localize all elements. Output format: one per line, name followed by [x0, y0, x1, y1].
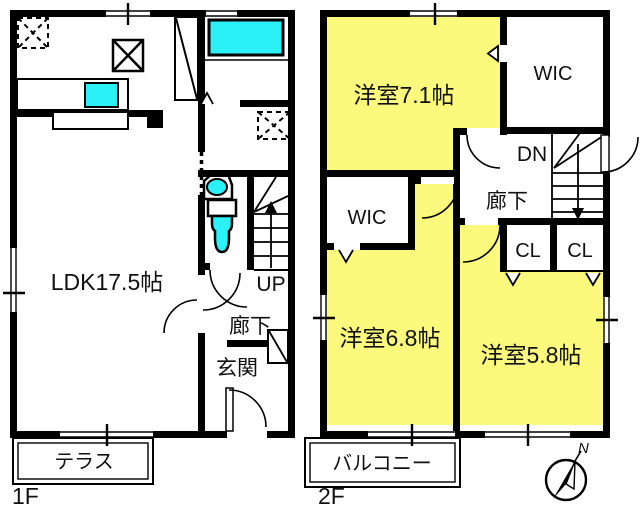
entrance-door-leaf: [226, 388, 233, 431]
kitchen-sink: [85, 83, 118, 107]
label-entrance: 玄関: [216, 357, 258, 380]
ldk-door-opening: [198, 275, 205, 333]
room71-door-opening: [467, 128, 500, 135]
floorplan-svg: LDK17.5帖 廊下 UP 玄関 テラス 1F: [0, 0, 640, 509]
wall-hall-west: [453, 128, 460, 225]
bathtub: [209, 20, 283, 55]
wall-closet-mid: [550, 225, 557, 271]
wall-wic-top-bottom: [507, 127, 610, 134]
wall-toilet-stairs: [247, 170, 254, 270]
label-cl-left: CL: [515, 240, 541, 262]
kitchen-counter-lower: [53, 112, 128, 129]
washbasin-bowl: [207, 179, 227, 195]
wall-washroom-bottom: [198, 170, 295, 177]
label-ldk: LDK17.5帖: [51, 269, 164, 295]
label-balcony: バルコニー: [332, 453, 432, 475]
stair-door-leaf: [601, 135, 609, 172]
wall-2f-top: [320, 10, 610, 17]
label-wic-left: WIC: [348, 207, 387, 229]
wall-wic-top: [500, 10, 507, 133]
wic-top-opening: [500, 45, 507, 62]
wall-ldk-east-c: [198, 333, 205, 438]
toilet-tank: [208, 200, 236, 216]
wall-1f-top: [10, 10, 295, 17]
label-hallway-2f: 廊下: [486, 190, 528, 213]
label-up: UP: [256, 273, 285, 296]
wall-wic-left-east: [408, 177, 415, 250]
toilet-door-opening: [210, 263, 247, 270]
toilet-bowl: [212, 216, 232, 252]
range-hood-box: [113, 40, 143, 71]
label-dn: DN: [517, 143, 547, 166]
wall-2f-left: [320, 10, 327, 438]
floorplan-image: LDK17.5帖 廊下 UP 玄関 テラス 1F: [0, 0, 640, 509]
wall-closet-left: [500, 225, 507, 271]
label-room-5-8: 洋室5.8帖: [481, 342, 582, 368]
label-floor-2f: 2F: [318, 483, 345, 509]
kitchen-wall-step: [147, 110, 163, 128]
compass-north-label: N: [578, 440, 589, 457]
label-terrace: テラス: [54, 451, 114, 473]
wall-1f-right: [288, 10, 295, 438]
label-floor-1f: 1F: [12, 483, 39, 509]
room58-door-opening: [465, 218, 498, 225]
entrance-door-opening: [227, 431, 267, 438]
label-hallway-1f: 廊下: [229, 315, 271, 338]
label-room-7-1: 洋室7.1帖: [354, 82, 455, 108]
wall-ldk-bath: [198, 17, 205, 107]
label-cl-right: CL: [567, 240, 593, 262]
wall-1f-left: [10, 10, 17, 438]
wall-room68-room58: [453, 225, 460, 431]
room68-door-opening: [421, 177, 454, 184]
wall-room71-bottom: [320, 170, 453, 177]
label-room-6-8: 洋室6.8帖: [340, 325, 441, 351]
wic-left-opening: [334, 243, 360, 250]
wall-ldk-east-a: [198, 107, 205, 152]
label-wic-top: WIC: [534, 63, 573, 85]
